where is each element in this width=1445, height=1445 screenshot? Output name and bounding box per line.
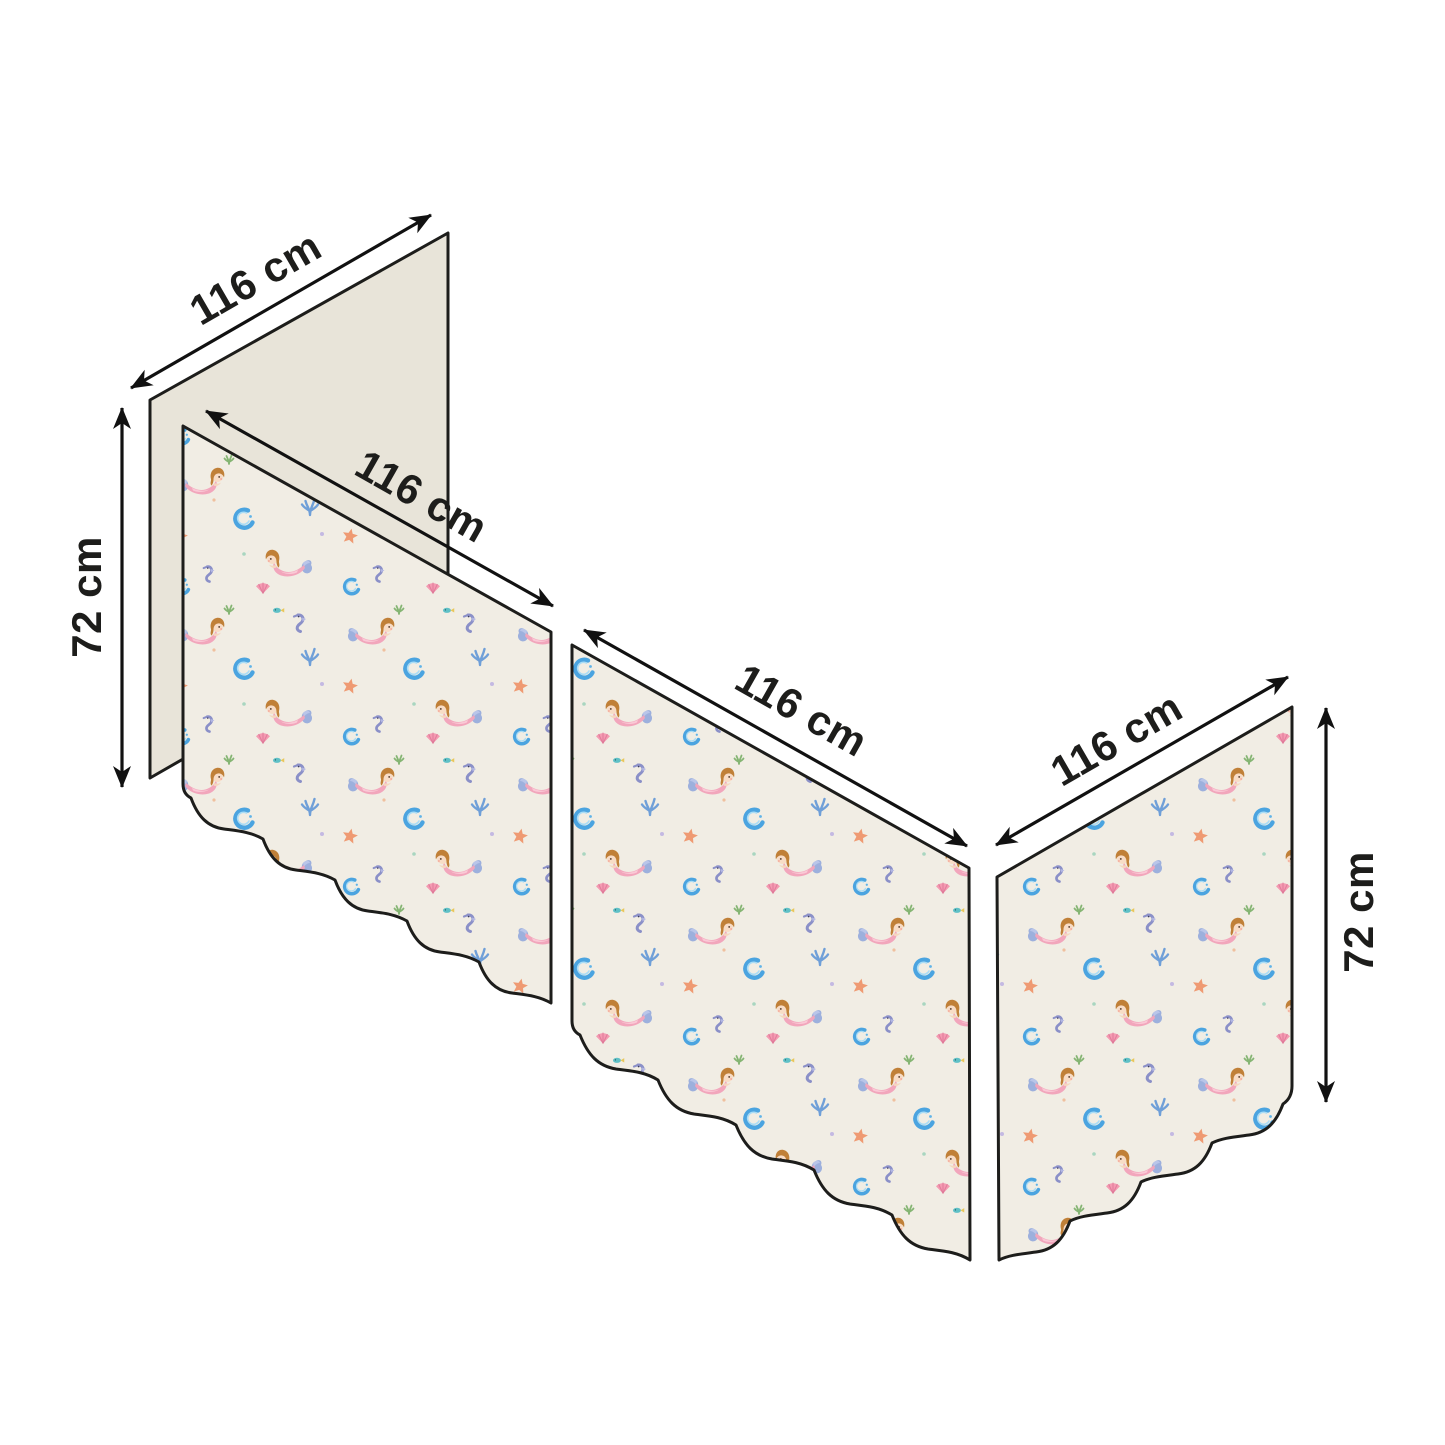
curtain-dimension-diagram: 116 cm 116 cm 116 cm 116 cm 72 cm 72 cm (0, 0, 1445, 1445)
right-height-label: 72 cm (1335, 851, 1382, 973)
left-height-label: 72 cm (63, 536, 110, 658)
diagram-canvas: 116 cm 116 cm 116 cm 116 cm 72 cm 72 cm (0, 0, 1445, 1445)
